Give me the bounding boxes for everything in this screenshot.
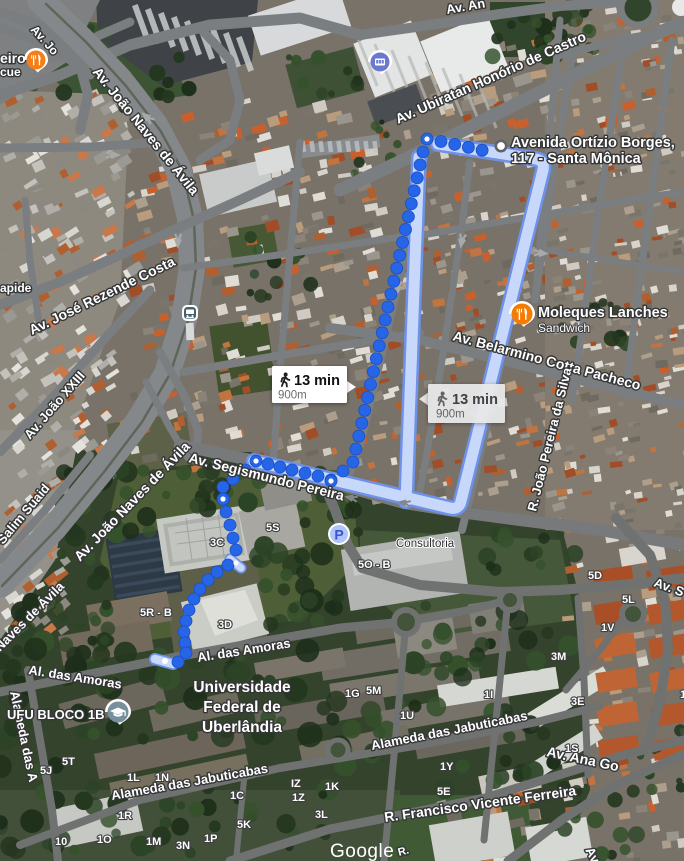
svg-text:Uberlândia: Uberlândia	[202, 719, 282, 736]
svg-text:1U: 1U	[400, 710, 414, 722]
svg-text:cue: cue	[0, 65, 21, 79]
svg-text:5M: 5M	[366, 685, 381, 697]
svg-text:1L: 1L	[127, 772, 140, 784]
svg-text:3C: 3C	[210, 537, 224, 549]
svg-text:900m: 900m	[436, 409, 465, 421]
svg-text:1G: 1G	[345, 688, 360, 700]
svg-text:1K: 1K	[325, 781, 339, 793]
svg-text:3D: 3D	[218, 619, 232, 631]
svg-text:5R - B: 5R - B	[140, 607, 172, 619]
svg-text:3M: 3M	[551, 651, 566, 663]
svg-text:900m: 900m	[278, 390, 307, 402]
svg-text:5E: 5E	[437, 786, 450, 798]
svg-text:5L: 5L	[622, 594, 635, 606]
svg-text:Moleques Lanches: Moleques Lanches	[538, 305, 668, 321]
svg-text:Google: Google	[330, 841, 394, 861]
svg-text:1Y: 1Y	[440, 761, 454, 773]
svg-text:eiro: eiro	[0, 50, 26, 66]
svg-text:1O: 1O	[97, 834, 112, 846]
svg-text:1R: 1R	[118, 810, 132, 822]
svg-text:P: P	[334, 527, 343, 543]
svg-text:5T: 5T	[62, 756, 75, 768]
svg-text:1Z: 1Z	[292, 792, 305, 804]
svg-text:13 min: 13 min	[294, 373, 340, 389]
svg-text:1S: 1S	[565, 743, 578, 755]
svg-text:Universidade: Universidade	[193, 679, 291, 696]
svg-text:IZ: IZ	[291, 778, 301, 790]
svg-text:Avenida Ortízio Borges,: Avenida Ortízio Borges,	[511, 135, 675, 151]
svg-text:5J: 5J	[40, 765, 52, 777]
svg-text:1P: 1P	[204, 833, 217, 845]
svg-text:1V: 1V	[601, 622, 615, 634]
svg-text:5K: 5K	[237, 819, 251, 831]
svg-text:1C: 1C	[230, 790, 244, 802]
svg-text:3L: 3L	[315, 809, 328, 821]
svg-text:1: 1	[680, 689, 684, 701]
svg-text:5D: 5D	[588, 570, 602, 582]
svg-text:1I: 1I	[484, 689, 493, 701]
svg-text:5O - B: 5O - B	[358, 559, 390, 571]
svg-text:UFU BLOCO 1B: UFU BLOCO 1B	[7, 707, 105, 722]
svg-text:1N: 1N	[155, 772, 169, 784]
svg-text:Federal de: Federal de	[203, 699, 281, 716]
svg-text:10: 10	[55, 836, 67, 848]
svg-text:5S: 5S	[266, 522, 279, 534]
svg-text:117 - Santa Mônica: 117 - Santa Mônica	[511, 151, 642, 167]
svg-text:3N: 3N	[176, 840, 190, 852]
svg-text:apide: apide	[0, 281, 32, 295]
svg-text:1M: 1M	[146, 836, 161, 848]
svg-text:13 min: 13 min	[452, 392, 498, 408]
svg-text:3E: 3E	[571, 696, 584, 708]
svg-text:Consultoria: Consultoria	[396, 538, 455, 550]
svg-text:Sandwich: Sandwich	[538, 321, 590, 335]
